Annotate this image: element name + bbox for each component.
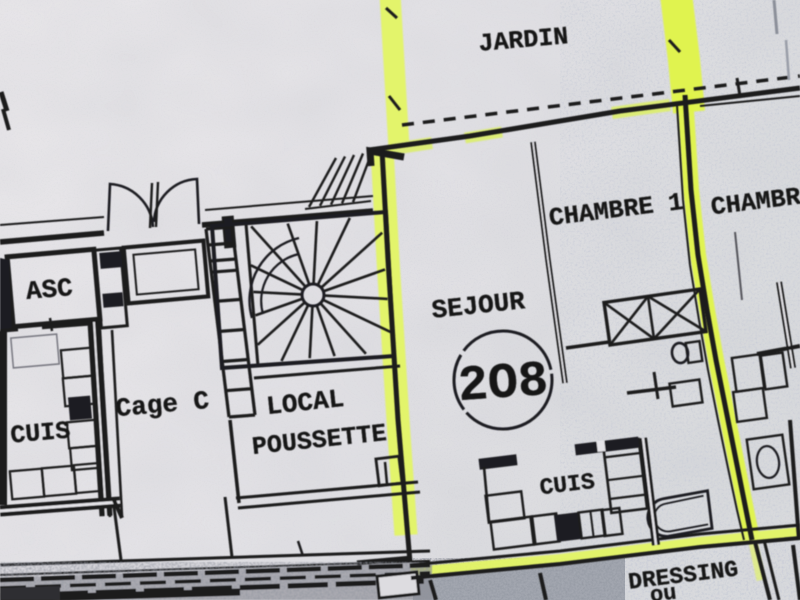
svg-text:ASC: ASC (25, 273, 74, 307)
svg-text:CUIS: CUIS (9, 416, 71, 450)
svg-text:2O8: 2O8 (456, 353, 550, 416)
svg-text:ou: ou (649, 581, 678, 600)
